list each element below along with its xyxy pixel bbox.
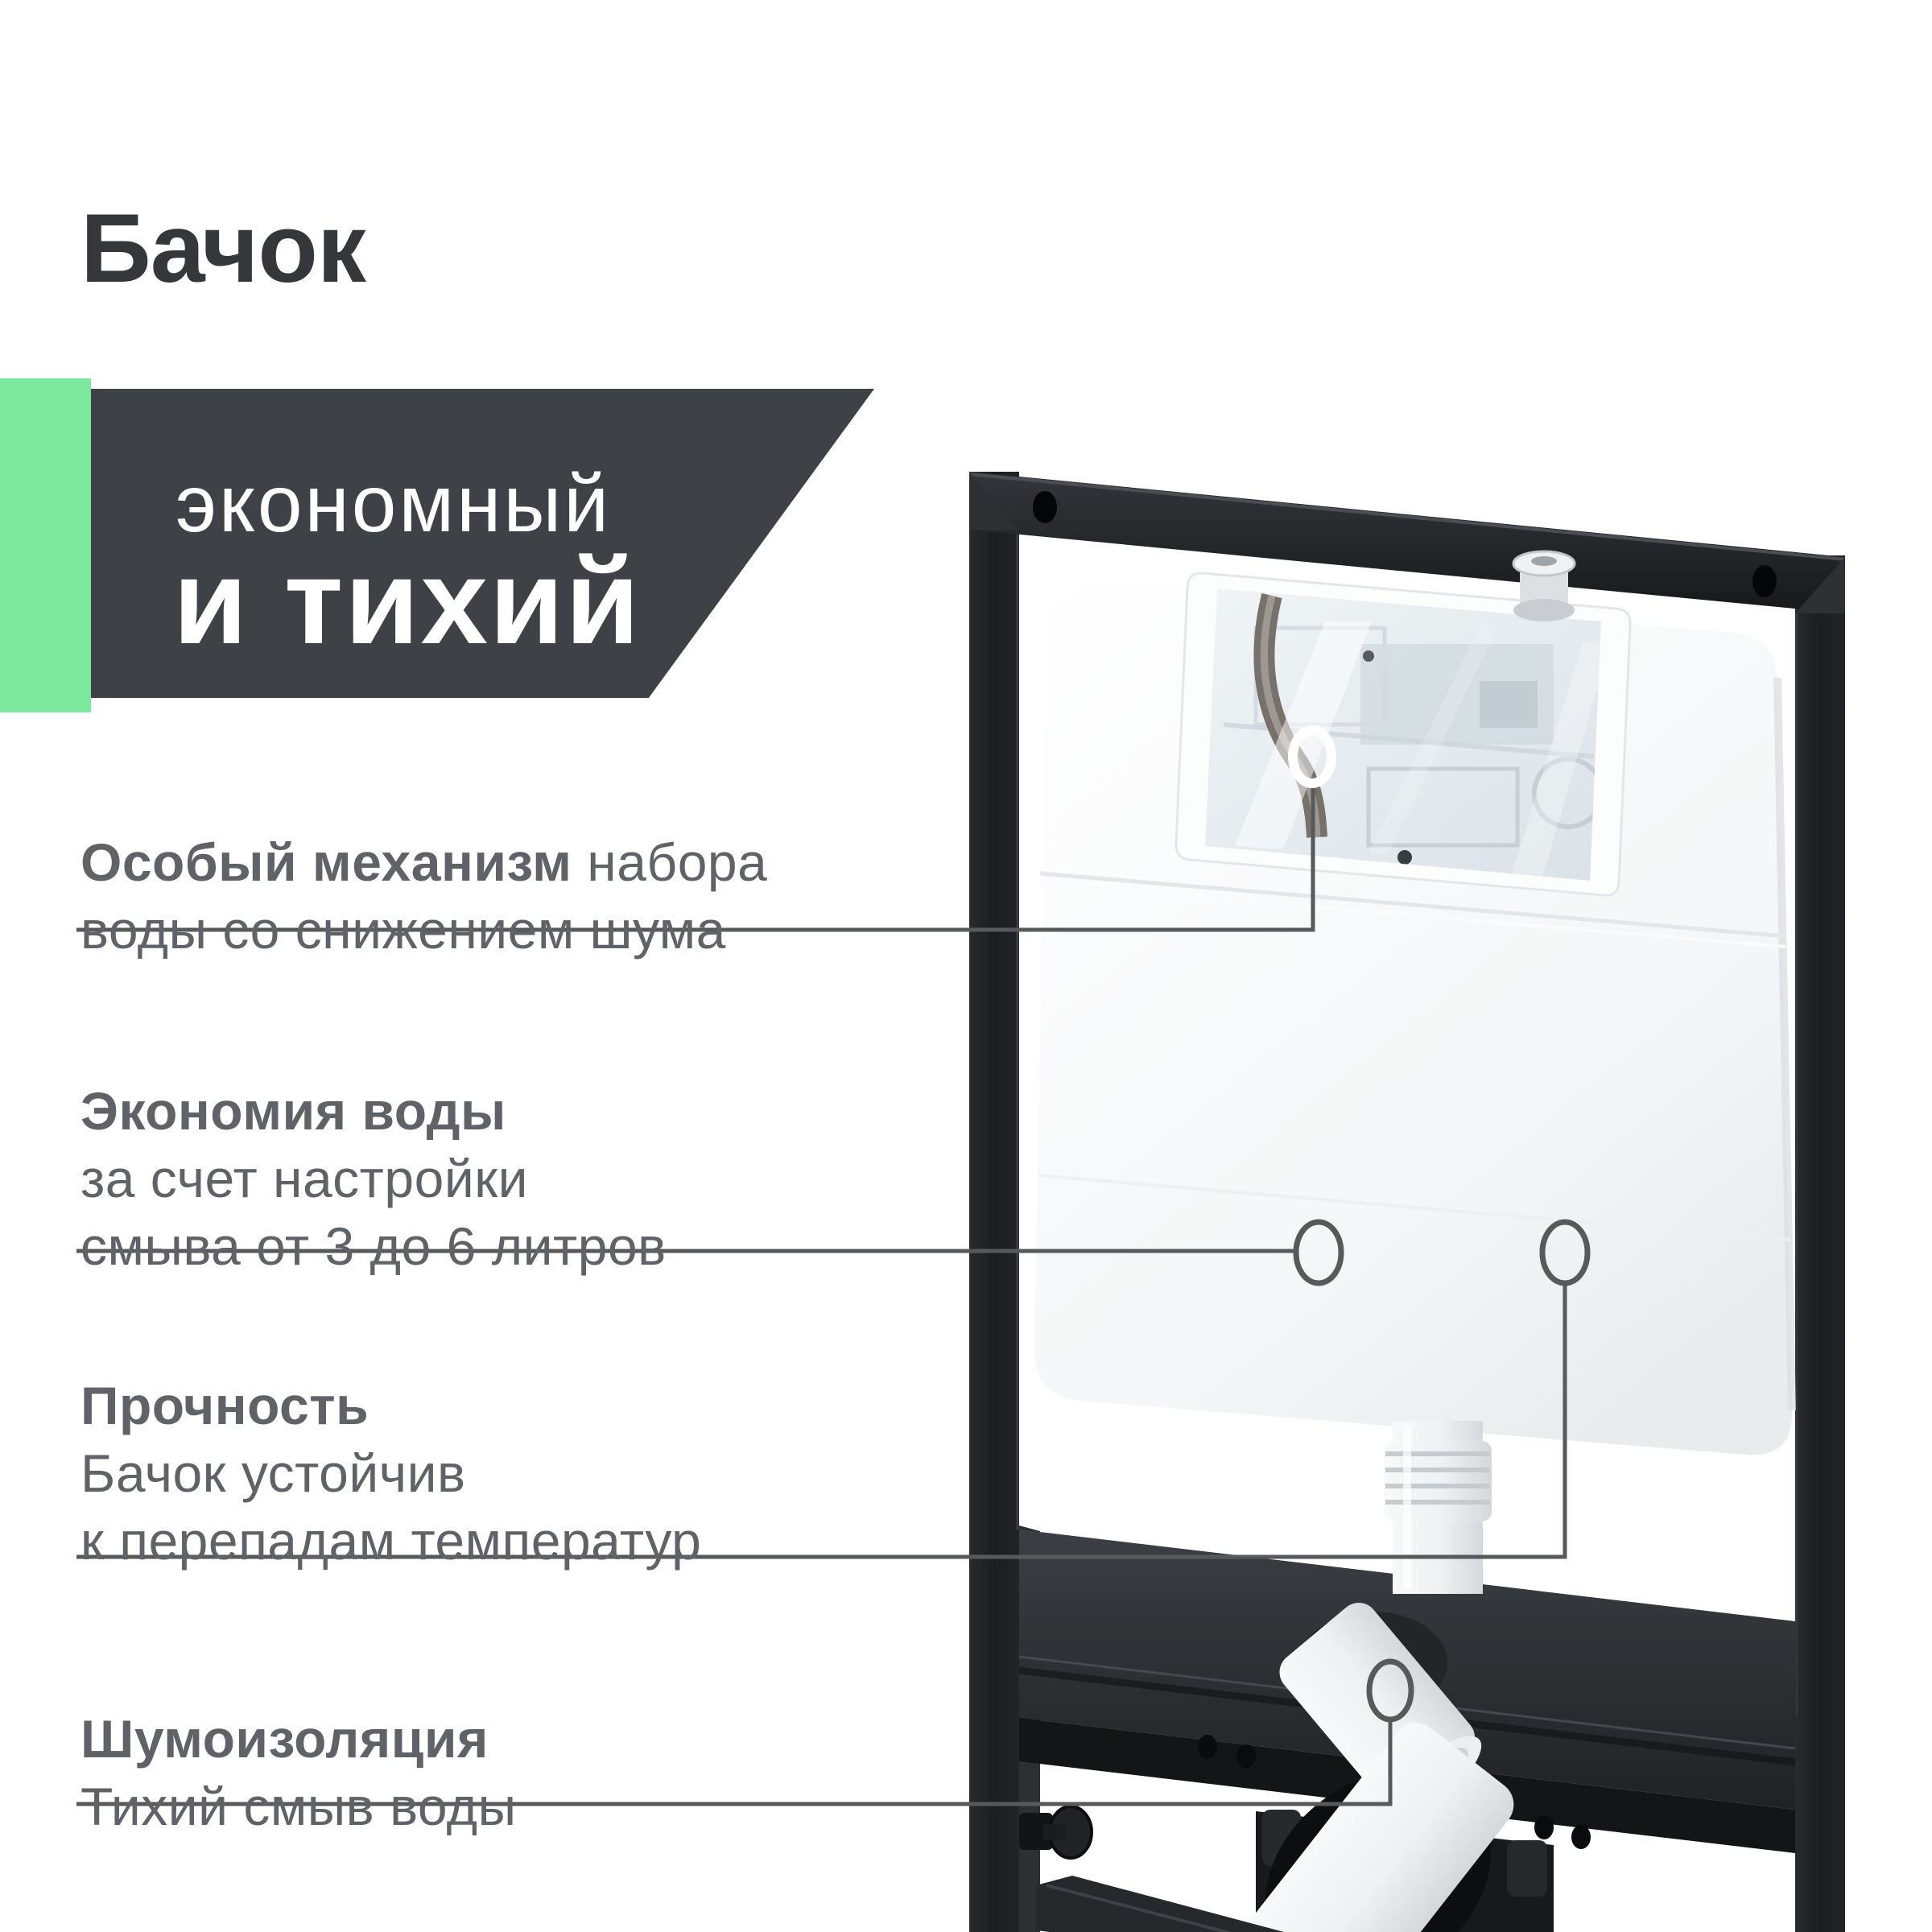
callout-annotations: [0, 0, 1932, 1932]
callout-circle-durability: [1542, 1222, 1587, 1283]
callout-circle-noise: [1369, 1662, 1411, 1719]
leader-line-durability: [76, 1285, 1565, 1557]
callout-circle-mechanism: [1293, 730, 1331, 783]
callout-circle-water-saving: [1296, 1222, 1341, 1283]
infographic-page: Бачок экономный и тихий Особый механизм …: [0, 0, 1932, 1932]
leader-line-mechanism: [76, 782, 1313, 930]
leader-line-noise: [76, 1721, 1390, 1804]
